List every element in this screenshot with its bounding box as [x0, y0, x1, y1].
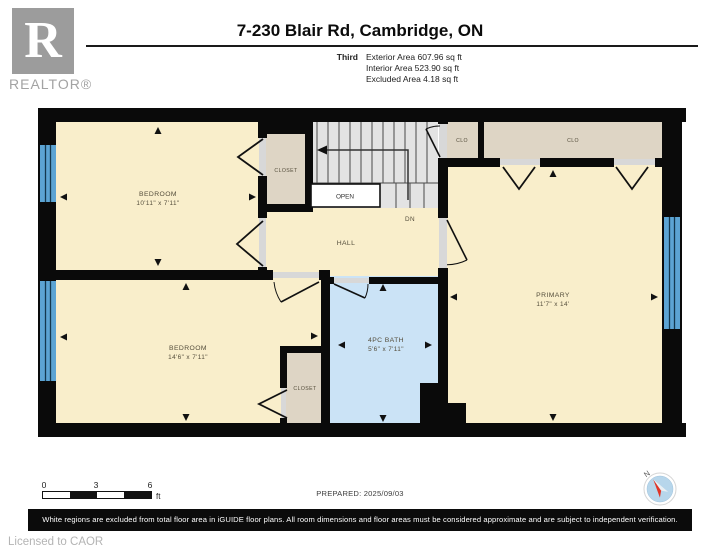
open-label: OPEN	[336, 194, 354, 201]
scale-tick-0: 0	[42, 480, 47, 490]
prepared-date: PREPARED: 2025/09/03	[260, 489, 460, 498]
scale-bar: 0 3 6 ft	[42, 480, 212, 502]
bedroom2-dims: 14'6" x 7'11"	[168, 354, 208, 361]
primary-dims: 11'7" x 14'	[536, 301, 569, 308]
floorplan-page: R REALTOR® 7-230 Blair Rd, Cambridge, ON…	[0, 0, 720, 556]
hall-label: HALL	[337, 240, 356, 247]
bedroom1-label: BEDROOM	[139, 191, 177, 198]
license-text: Licensed to CAOR	[8, 536, 103, 548]
scale-tick-3: 3	[94, 480, 99, 490]
scale-bar-segments	[42, 491, 152, 499]
bath-label: 4PC BATH	[368, 337, 404, 344]
disclaimer-bar: White regions are excluded from total fl…	[28, 509, 692, 531]
clo2-label: CLO	[567, 138, 579, 144]
bedroom2-label: BEDROOM	[169, 345, 207, 352]
scale-tick-6: 6	[148, 480, 153, 490]
stairs-down-label: DN	[405, 216, 415, 223]
clo1-label: CLO	[456, 138, 468, 144]
closet2-label: CLOSET	[293, 386, 317, 392]
floor-plan: BEDROOM 10'11" x 7'11" BEDROOM 14'6" x 7…	[0, 0, 720, 465]
compass-icon: N	[640, 466, 680, 513]
primary-label: PRIMARY	[536, 292, 570, 299]
scale-unit: ft	[156, 492, 160, 501]
bath-dims: 5'6" x 7'11"	[368, 346, 404, 353]
closet1-label: CLOSET	[274, 168, 298, 174]
bedroom1-dims: 10'11" x 7'11"	[136, 200, 179, 207]
